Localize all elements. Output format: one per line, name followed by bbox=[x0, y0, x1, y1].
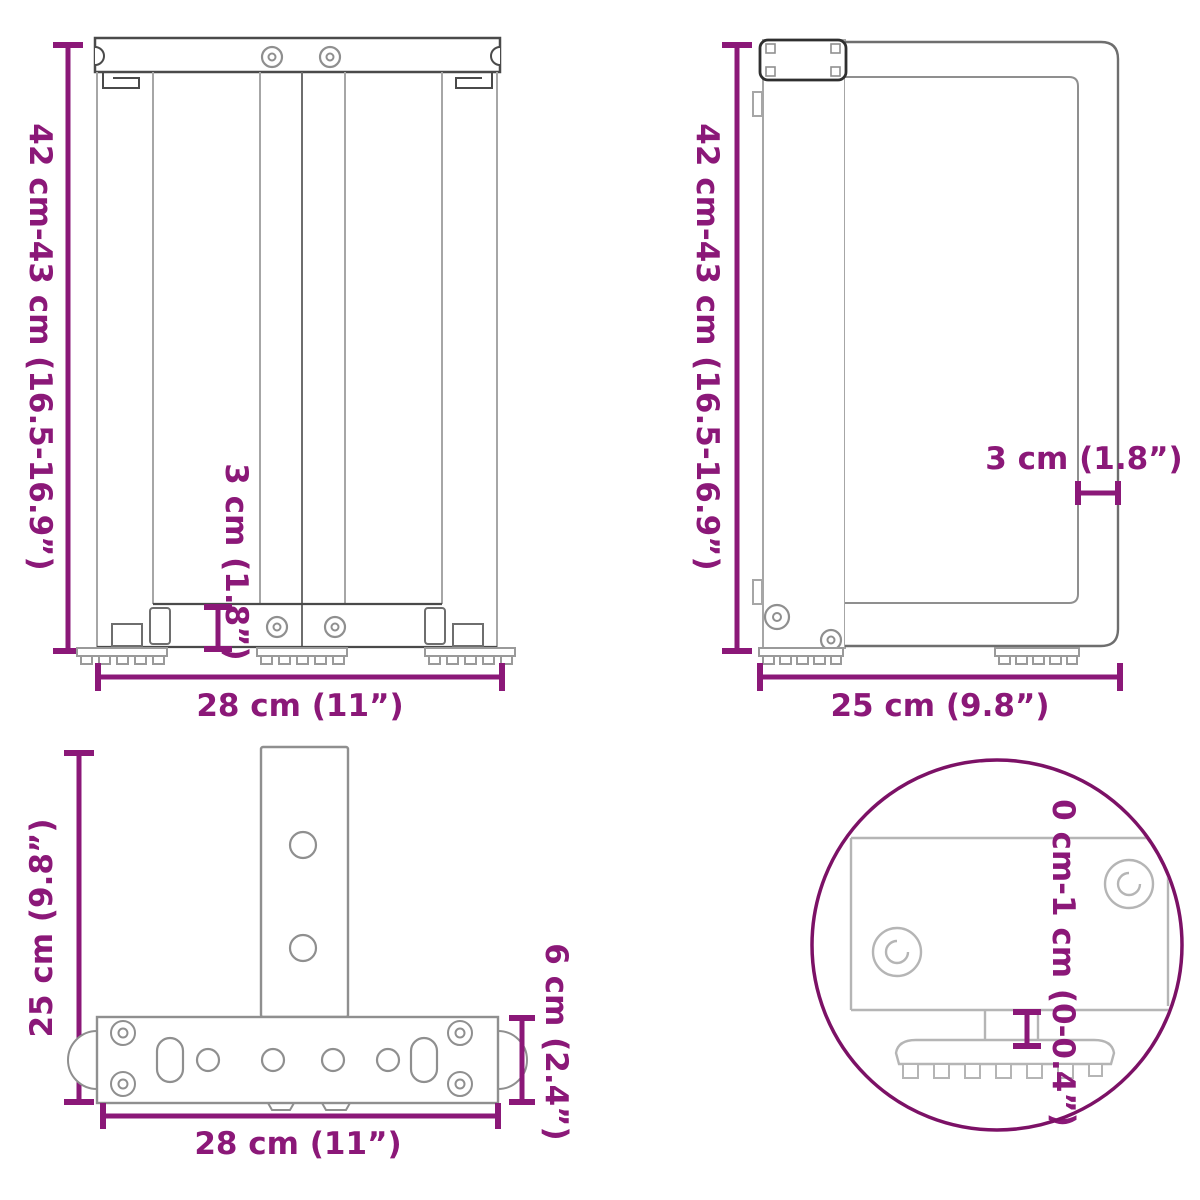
front-plate-notch-left bbox=[95, 47, 104, 65]
side-post bbox=[763, 40, 845, 648]
screw-icon bbox=[873, 928, 921, 976]
side-view: 42 cm-43 cm (16.5-16.9”) 3 cm (1.8”) 25 bbox=[689, 40, 1183, 724]
top-depth-dimension-label: 25 cm (9.8”) bbox=[24, 818, 60, 1037]
front-top-plate bbox=[95, 38, 500, 72]
top-bar-dimension-label: 6 cm (2.4”) bbox=[538, 943, 574, 1140]
front-width-dimension-label: 28 cm (11”) bbox=[196, 688, 403, 724]
mounting-hole bbox=[197, 1049, 219, 1071]
front-plate-notch-right bbox=[491, 47, 500, 65]
top-foot-bulge-left bbox=[68, 1031, 97, 1089]
serrated-foot bbox=[995, 648, 1079, 664]
slot-hole bbox=[157, 1038, 183, 1082]
top-view: 25 cm (9.8”) 6 cm (2.4”) bbox=[24, 747, 574, 1162]
serrated-foot bbox=[759, 648, 843, 664]
serrated-foot bbox=[257, 648, 347, 664]
screw-icon bbox=[111, 1021, 135, 1045]
slot-hole bbox=[411, 1038, 437, 1082]
screw-icon bbox=[448, 1072, 472, 1096]
screw-icon bbox=[765, 605, 789, 629]
mounting-hole bbox=[290, 935, 316, 961]
side-offset-dimension-label: 3 cm (1.8”) bbox=[985, 441, 1182, 477]
screw-icon bbox=[262, 47, 282, 67]
front-crossbar-bracket-right bbox=[453, 624, 483, 646]
foot-detail-view: 0 cm-1 cm (0-0.4”) bbox=[812, 760, 1183, 1130]
front-height-dimension-label: 42 cm-43 cm (16.5-16.9”) bbox=[22, 123, 58, 570]
serrated-foot bbox=[77, 648, 167, 664]
front-crossbar-tab-right bbox=[425, 608, 445, 644]
front-plate-hook-right bbox=[456, 72, 492, 88]
top-width-dimension-label: 28 cm (11”) bbox=[194, 1126, 401, 1162]
side-post-nub-top bbox=[753, 92, 762, 116]
front-crossbar-tab-left bbox=[150, 608, 170, 644]
side-height-dimension-label: 42 cm-43 cm (16.5-16.9”) bbox=[689, 123, 725, 570]
screw-icon bbox=[320, 47, 340, 67]
side-post-nub-bottom bbox=[753, 580, 762, 604]
side-depth-dimension-label: 25 cm (9.8”) bbox=[830, 688, 1049, 724]
front-plate-hook-left bbox=[103, 72, 139, 88]
front-view: 42 cm-43 cm (16.5-16.9”) bbox=[22, 38, 515, 724]
serrated-foot bbox=[425, 648, 515, 664]
side-top-bracket bbox=[760, 40, 846, 80]
screw-icon bbox=[267, 617, 287, 637]
screw-icon bbox=[111, 1072, 135, 1096]
mounting-hole bbox=[322, 1049, 344, 1071]
screw-icon bbox=[448, 1021, 472, 1045]
technical-drawing: 42 cm-43 cm (16.5-16.9”) bbox=[0, 0, 1200, 1200]
front-inset-dimension-label: 3 cm (1.8”) bbox=[218, 463, 254, 660]
front-crossbar-bracket-left bbox=[112, 624, 142, 646]
top-post-bar bbox=[261, 747, 348, 1017]
screw-icon bbox=[325, 617, 345, 637]
dimension-diagram-page: 42 cm-43 cm (16.5-16.9”) bbox=[0, 0, 1200, 1200]
detail-adjust-dimension-label: 0 cm-1 cm (0-0.4”) bbox=[1045, 799, 1081, 1127]
mounting-hole bbox=[377, 1049, 399, 1071]
mounting-hole bbox=[290, 832, 316, 858]
mounting-hole bbox=[262, 1049, 284, 1071]
screw-icon bbox=[1105, 860, 1153, 908]
